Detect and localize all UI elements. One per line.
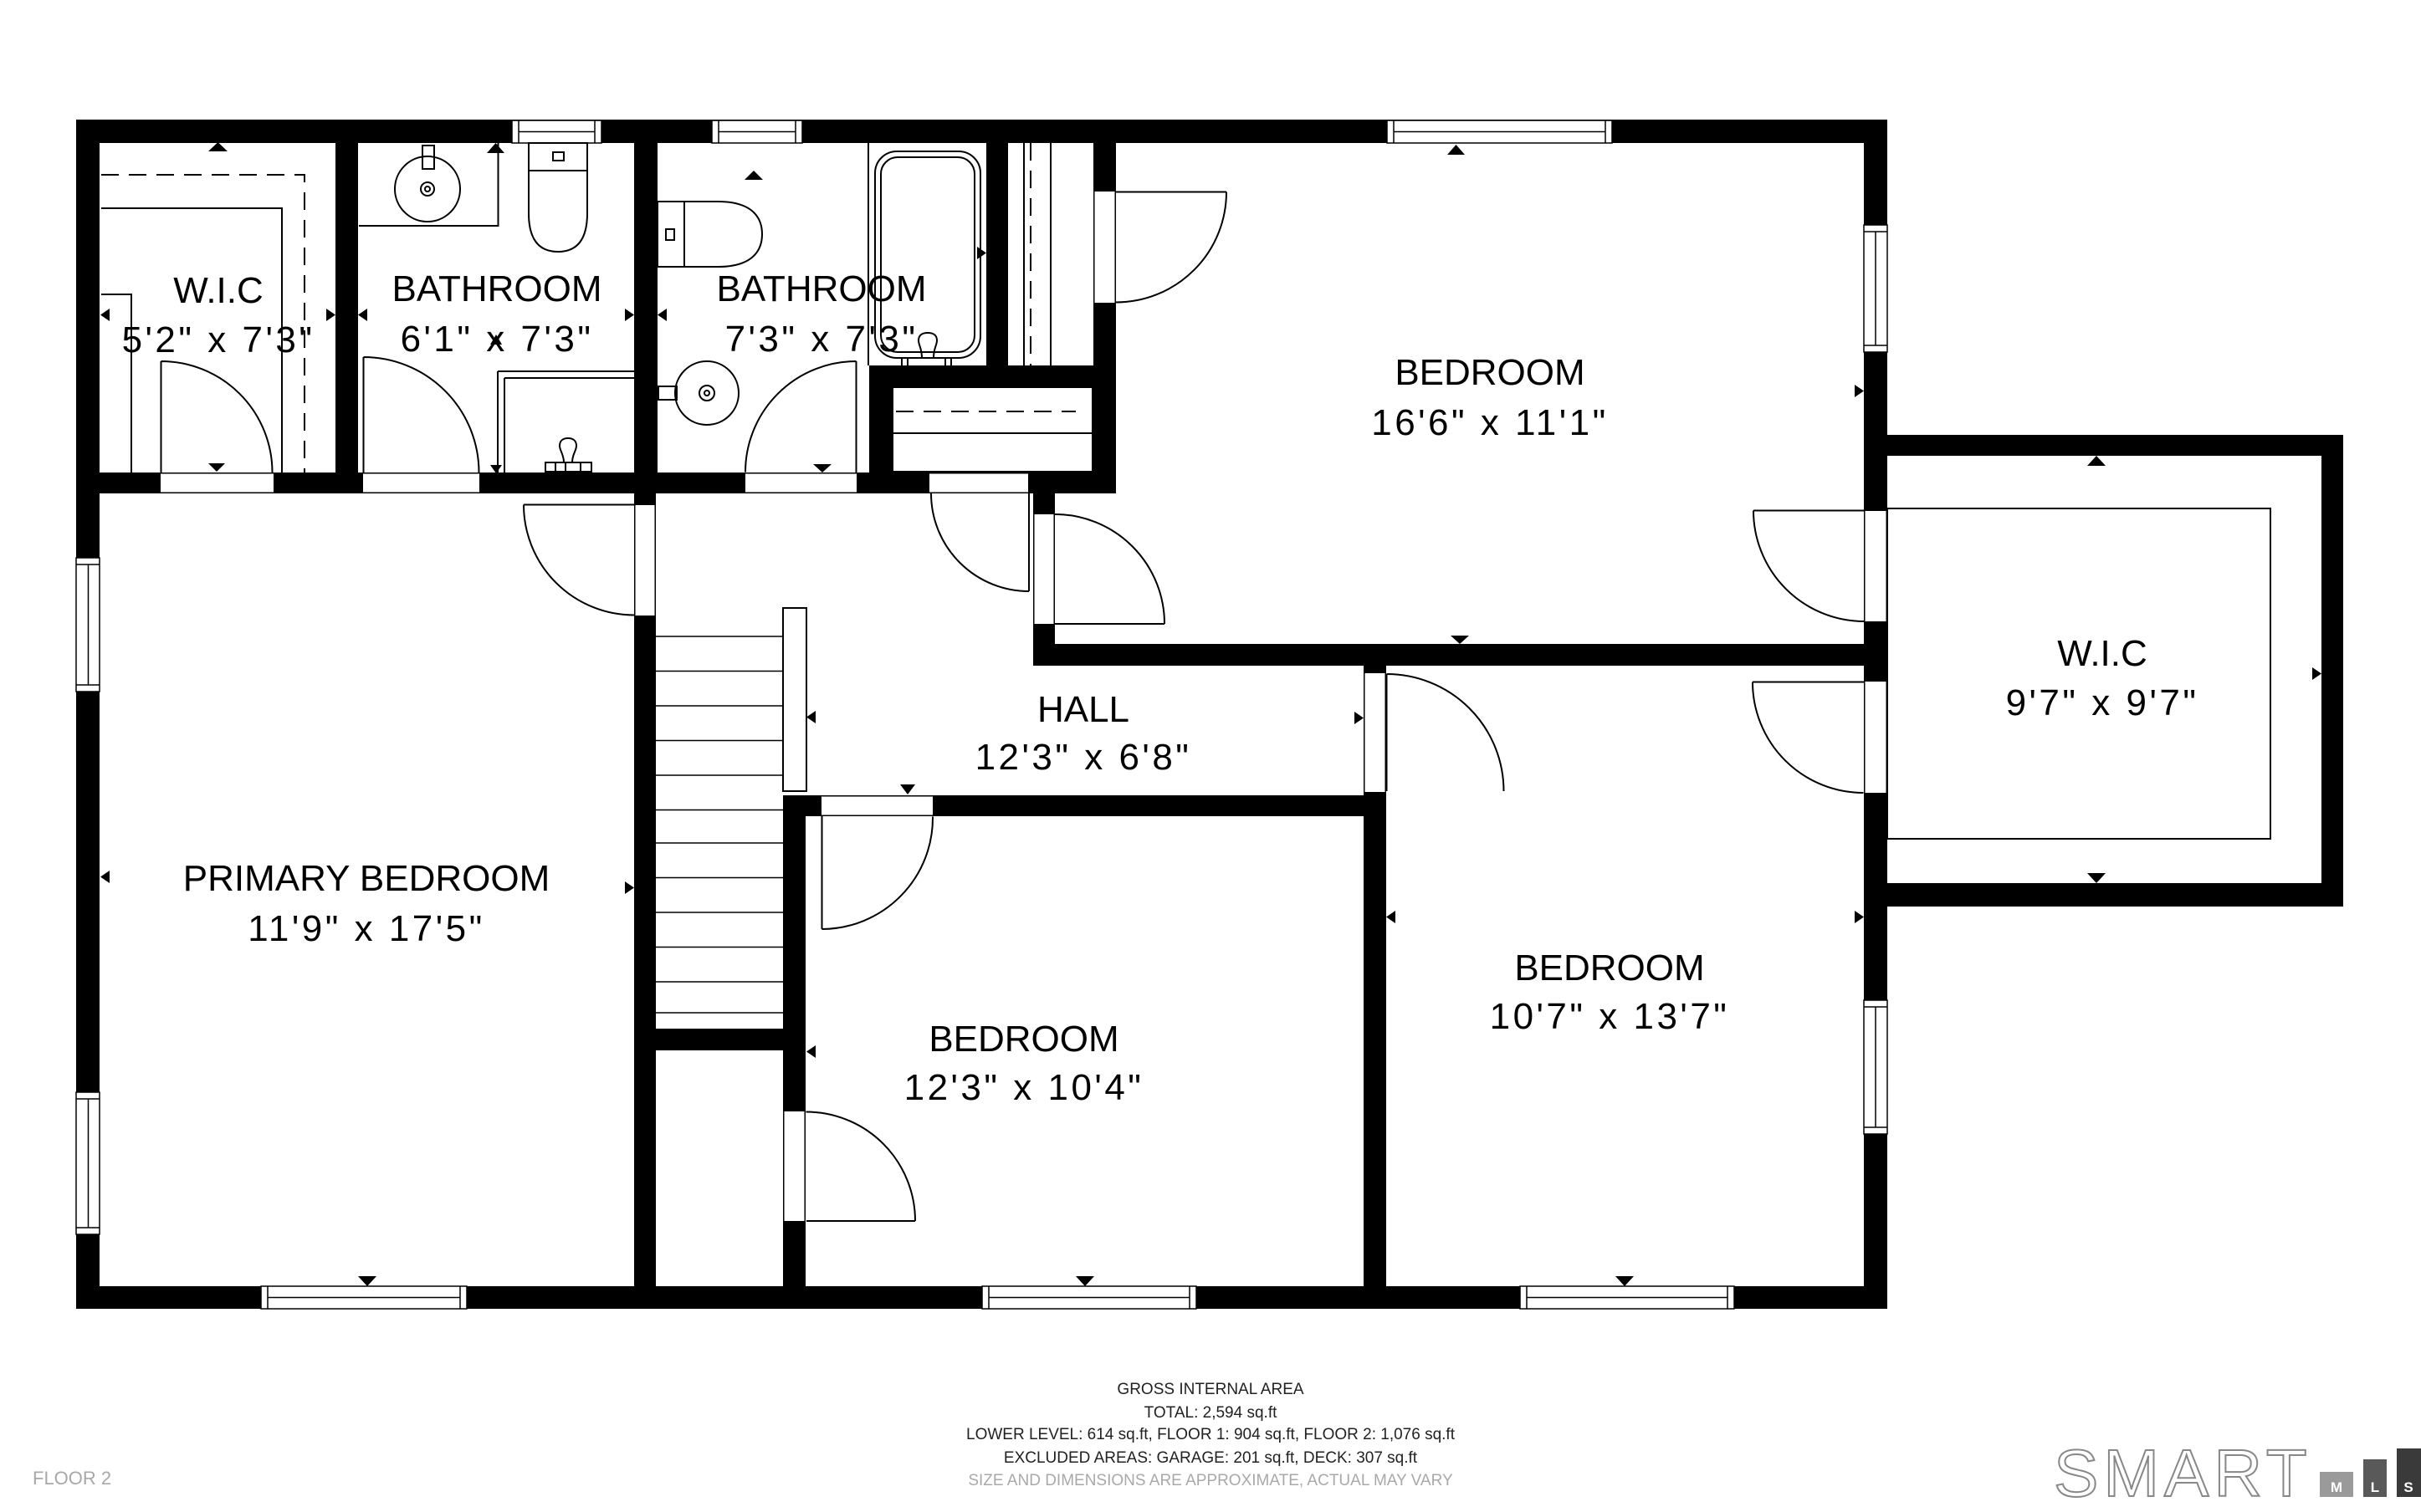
svg-text:BATHROOM: BATHROOM — [392, 268, 602, 309]
svg-text:BEDROOM: BEDROOM — [1395, 352, 1584, 393]
svg-text:L: L — [2371, 1479, 2379, 1495]
svg-text:5'2" x 7'3": 5'2" x 7'3" — [122, 319, 315, 360]
svg-text:LOWER LEVEL: 614 sq.ft, FLOOR: LOWER LEVEL: 614 sq.ft, FLOOR 1: 904 sq.… — [966, 1426, 1456, 1443]
svg-text:FLOOR 2: FLOOR 2 — [33, 1468, 111, 1489]
svg-text:12'3" x 10'4": 12'3" x 10'4" — [904, 1067, 1144, 1108]
svg-text:9'7" x 9'7": 9'7" x 9'7" — [2006, 682, 2199, 723]
svg-text:SIZE AND DIMENSIONS ARE APPROX: SIZE AND DIMENSIONS ARE APPROXIMATE, ACT… — [968, 1472, 1453, 1489]
svg-text:7'3" x 7'3": 7'3" x 7'3" — [725, 319, 919, 360]
svg-text:SMART: SMART — [2054, 1436, 2312, 1510]
svg-text:10'7" x 13'7": 10'7" x 13'7" — [1490, 996, 1730, 1037]
svg-text:S: S — [2403, 1479, 2413, 1495]
svg-text:11'9" x 17'5": 11'9" x 17'5" — [248, 908, 485, 949]
svg-text:PRIMARY BEDROOM: PRIMARY BEDROOM — [183, 858, 550, 899]
svg-text:W.I.C: W.I.C — [173, 270, 264, 311]
svg-text:W.I.C: W.I.C — [2057, 633, 2147, 674]
svg-text:M: M — [2331, 1479, 2342, 1495]
svg-text:BATHROOM: BATHROOM — [717, 268, 927, 309]
svg-text:EXCLUDED AREAS: GARAGE: 201 sq: EXCLUDED AREAS: GARAGE: 201 sq.ft, DECK:… — [1004, 1449, 1418, 1467]
svg-text:16'6" x 11'1": 16'6" x 11'1" — [1371, 402, 1609, 443]
svg-text:GROSS INTERNAL AREA: GROSS INTERNAL AREA — [1117, 1381, 1303, 1398]
svg-text:12'3" x 6'8": 12'3" x 6'8" — [975, 737, 1192, 778]
svg-text:6'1" x 7'3": 6'1" x 7'3" — [401, 319, 594, 360]
svg-text:TOTAL: 2,594 sq.ft: TOTAL: 2,594 sq.ft — [1144, 1404, 1277, 1422]
svg-text:HALL: HALL — [1037, 689, 1129, 730]
svg-text:BEDROOM: BEDROOM — [1514, 948, 1704, 988]
svg-text:BEDROOM: BEDROOM — [929, 1019, 1118, 1060]
